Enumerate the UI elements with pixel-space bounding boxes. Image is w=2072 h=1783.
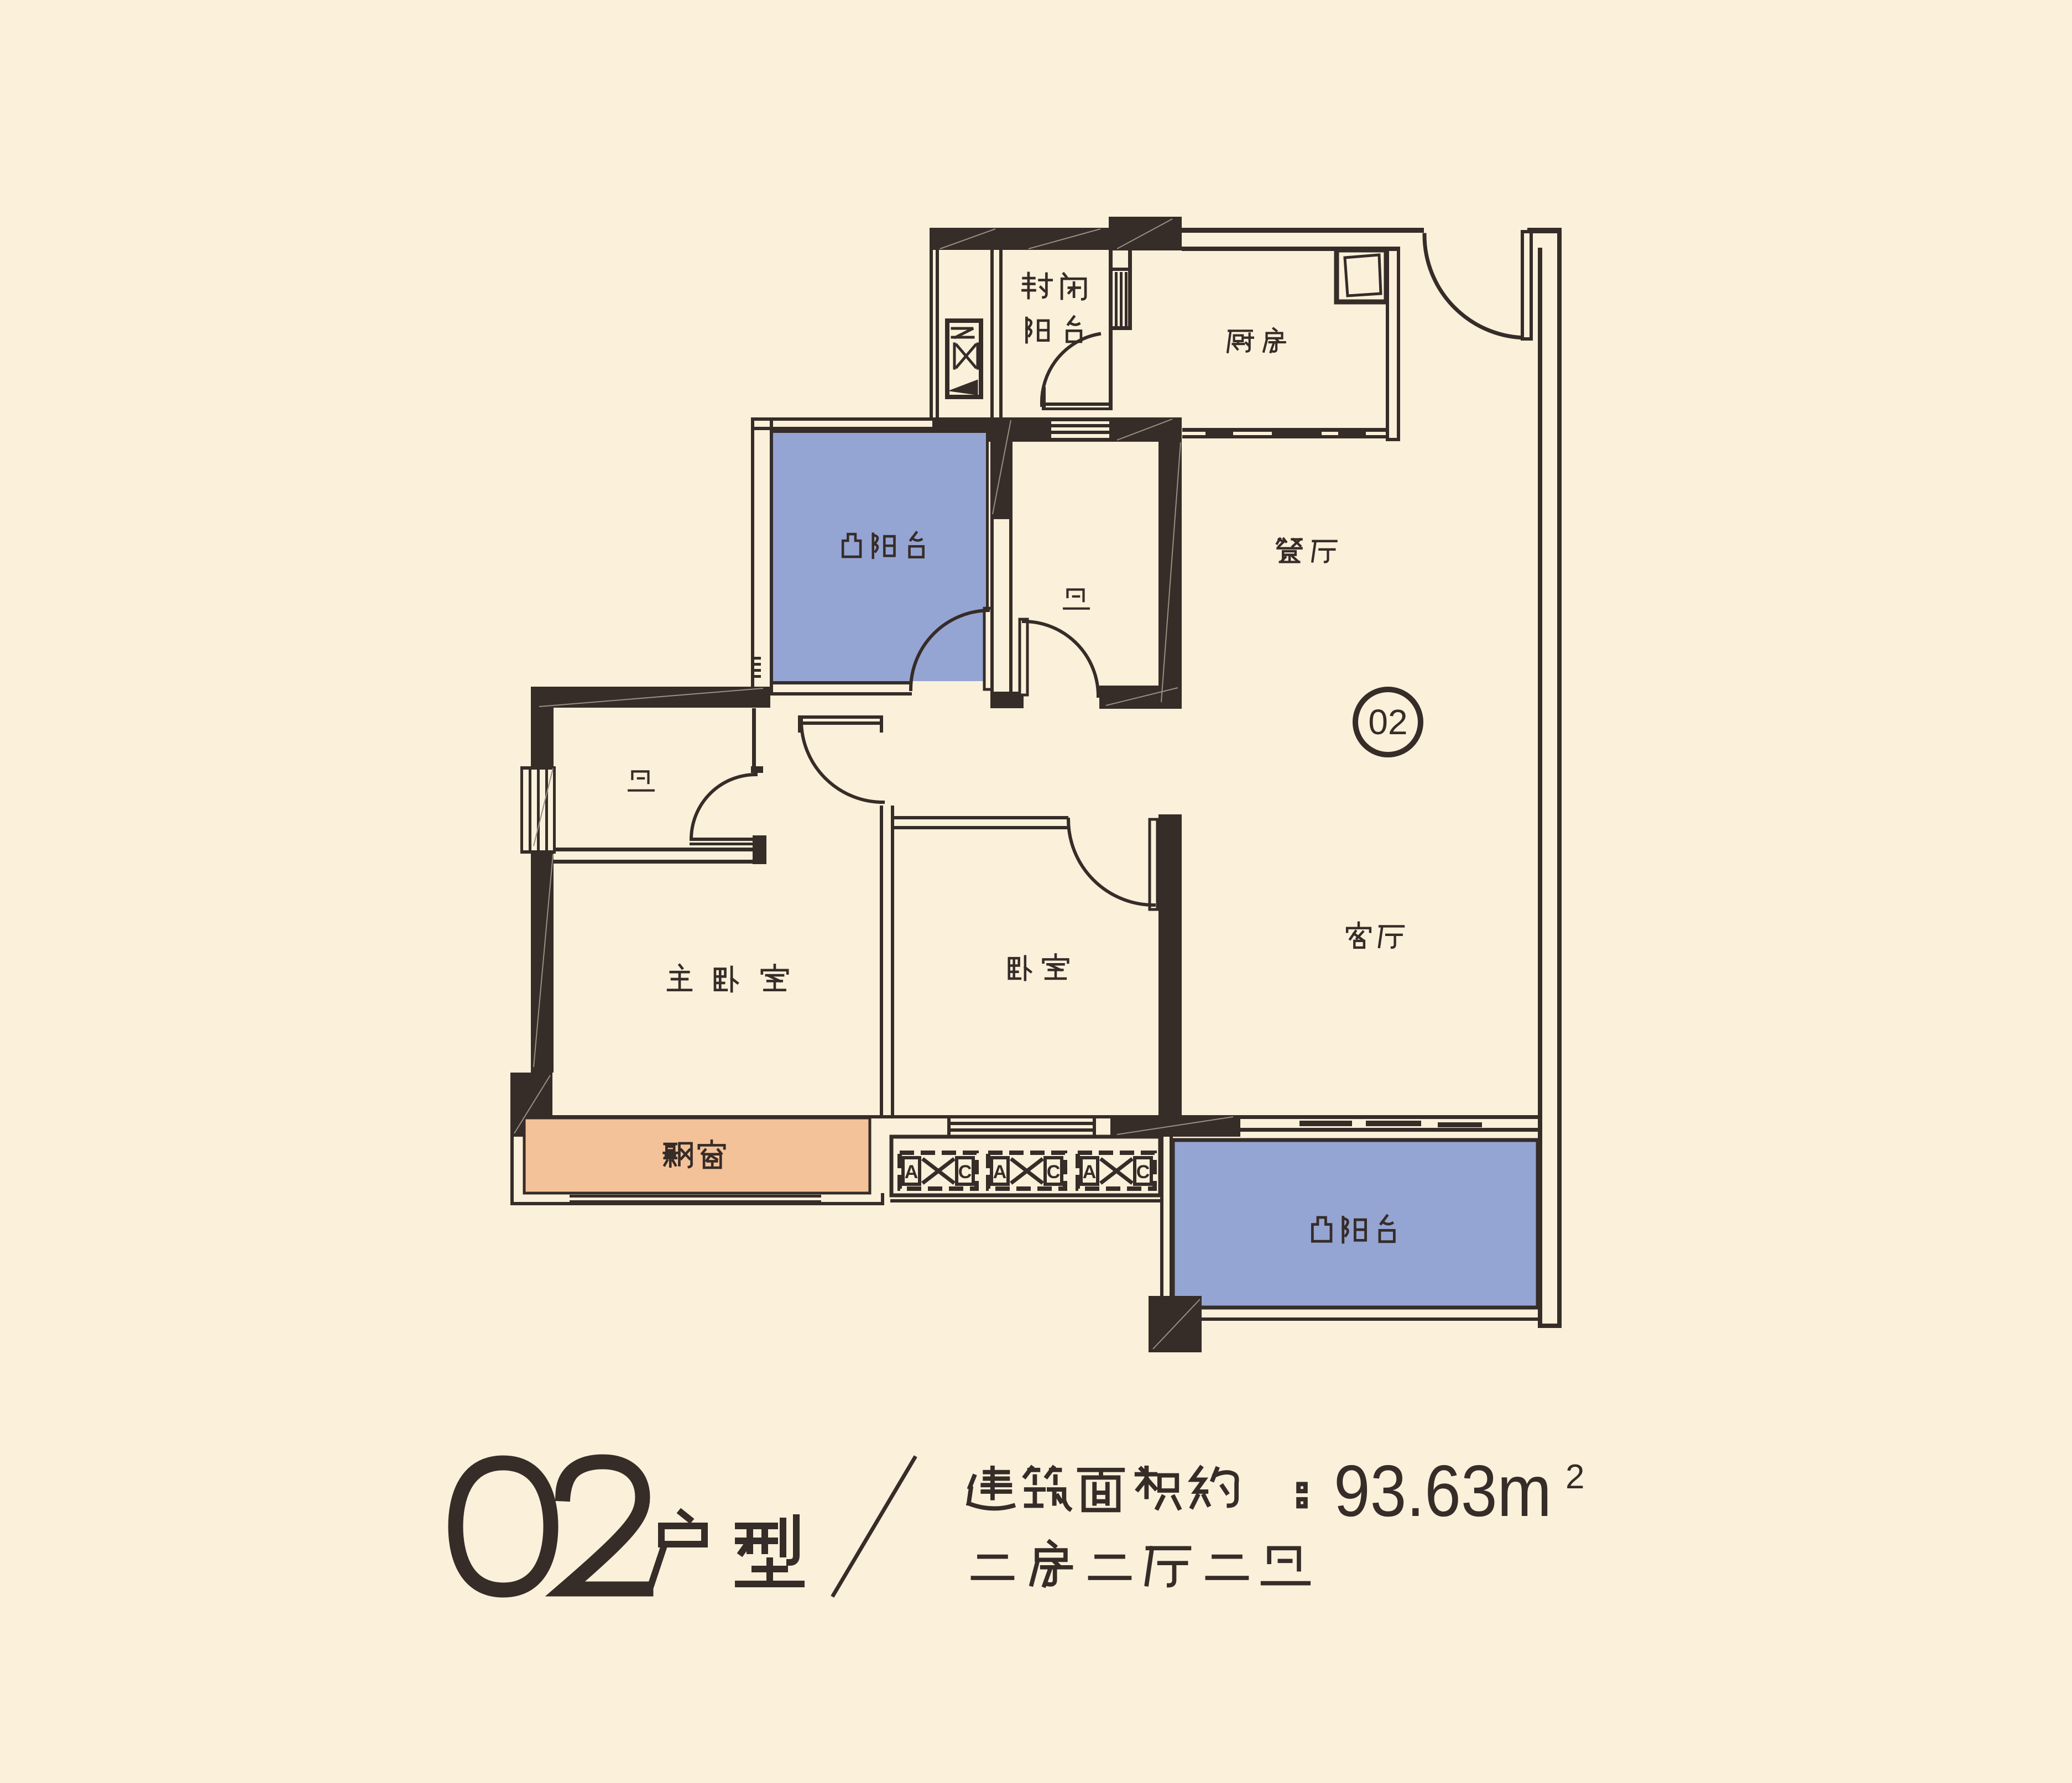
svg-text:02: 02 — [1368, 702, 1407, 742]
svg-text:2: 2 — [1565, 1458, 1584, 1496]
svg-text:A: A — [905, 1162, 918, 1183]
svg-text:C: C — [1136, 1162, 1150, 1183]
svg-text:C: C — [1047, 1162, 1061, 1183]
svg-text:93.63m: 93.63m — [1334, 1450, 1552, 1531]
svg-text:C: C — [958, 1162, 972, 1183]
svg-text:A: A — [1083, 1162, 1097, 1183]
svg-text:A: A — [993, 1162, 1007, 1183]
